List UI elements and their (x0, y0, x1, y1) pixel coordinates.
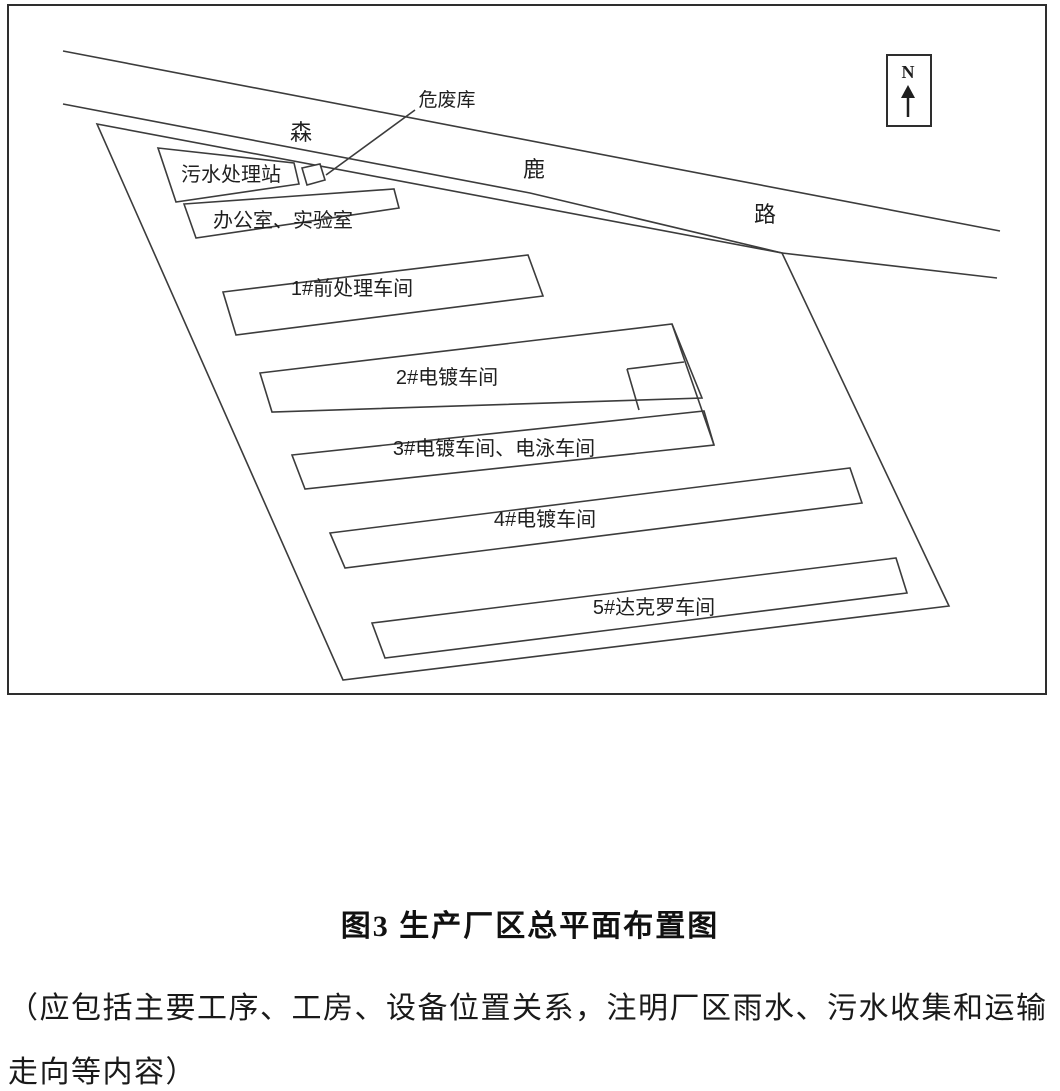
label-hazardous-waste: 危废库 (418, 89, 475, 111)
label-workshop-5: 5#达克罗车间 (593, 596, 715, 619)
building-hazardous-waste (302, 164, 325, 185)
figure-note-line-1: （应包括主要工序、工房、设备位置关系，注明厂区雨水、污水收集和运输 (8, 983, 1054, 1027)
figure-caption: 图3 生产厂区总平面布置图 (0, 901, 1060, 945)
figure-note-line-2: 走向等内容） (8, 1047, 1054, 1091)
label-workshop-3: 3#电镀车间、电泳车间 (393, 437, 595, 460)
hazardous-waste-leader-line (326, 110, 415, 175)
label-workshop-1: 1#前处理车间 (291, 277, 413, 300)
road-name-char-3: 路 (754, 202, 776, 227)
north-arrow-icon: N (887, 55, 931, 126)
road-name-char-1: 森 (290, 120, 312, 145)
label-workshop-2: 2#电镀车间 (396, 366, 498, 389)
label-office-lab: 办公室、实验室 (213, 209, 353, 232)
road-edge-bottom-extension (782, 253, 997, 278)
road-name-char-2: 鹿 (523, 157, 545, 182)
label-workshop-4: 4#电镀车间 (494, 508, 596, 531)
label-sewage-station: 污水处理站 (181, 163, 281, 186)
compass-n-label: N (902, 62, 915, 82)
